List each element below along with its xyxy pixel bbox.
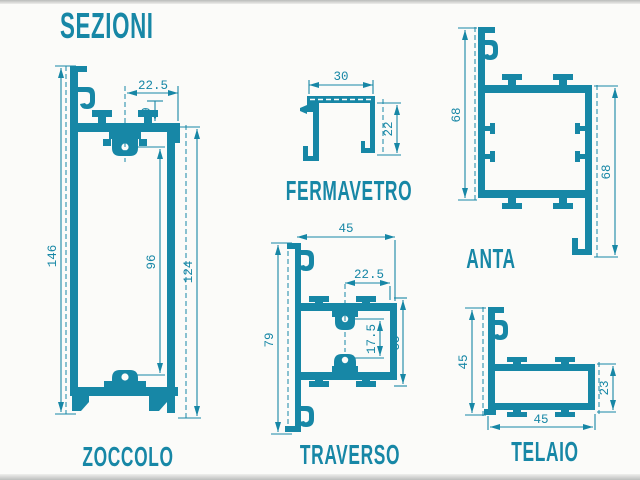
dim-text-79: 79: [263, 332, 277, 347]
dimension-telaio-23: 23: [597, 364, 616, 412]
technical-drawing-page: SEZIONI: [0, 0, 640, 480]
profile-drawing-telaio: 45 23 45: [457, 307, 616, 430]
dim-text-17-5: 17.5: [365, 324, 379, 354]
dimension-zoccolo-96: 96: [129, 147, 165, 375]
dim-text-22: 22: [382, 121, 396, 136]
dim-text-23: 23: [598, 380, 612, 395]
profile-drawing-fermavetro: 30 22: [300, 70, 401, 161]
profile-drawing-anta: 68 68: [450, 27, 618, 257]
dimension-fermavetro-22: 22: [377, 103, 401, 155]
profile-drawing-traverso: 45 22.5 79 17.5: [263, 222, 407, 434]
dimension-telaio-45-left: 45: [457, 308, 486, 415]
sections-drawing: 146 22.5 9 96: [0, 0, 640, 480]
profile-label-fermavetro: FERMAVETRO: [286, 177, 412, 205]
dim-text-22-5: 22.5: [138, 79, 168, 93]
profile-label-telaio: TELAIO: [511, 438, 578, 466]
dimension-traverso-22-5: 22.5: [345, 268, 390, 300]
dim-text-35: 35: [389, 335, 403, 350]
dim-text-68-right: 68: [600, 164, 614, 179]
dim-text-68-left: 68: [450, 107, 464, 122]
dim-text-22-5: 22.5: [354, 268, 384, 282]
dim-text-96: 96: [145, 254, 159, 269]
dimension-anta-68-left: 68: [450, 28, 477, 200]
dimension-telaio-45-bottom: 45: [488, 413, 595, 430]
profile-label-zoccolo: ZOCCOLO: [82, 443, 173, 471]
dim-text-45: 45: [338, 222, 353, 236]
dim-text-9: 9: [140, 107, 154, 115]
dim-text-45-left: 45: [457, 354, 471, 369]
dim-text-45-bottom: 45: [533, 413, 548, 427]
dimension-fermavetro-30: 30: [309, 70, 373, 94]
dim-text-30: 30: [333, 70, 348, 84]
profile-label-anta: ANTA: [466, 245, 515, 273]
profile-drawing-zoccolo: 146 22.5 9 96: [46, 66, 201, 420]
dim-text-146: 146: [46, 245, 60, 268]
dimension-anta-68-right: 68: [594, 86, 618, 257]
profile-label-traverso: TRAVERSO: [300, 441, 400, 469]
dim-text-124: 124: [182, 261, 196, 284]
